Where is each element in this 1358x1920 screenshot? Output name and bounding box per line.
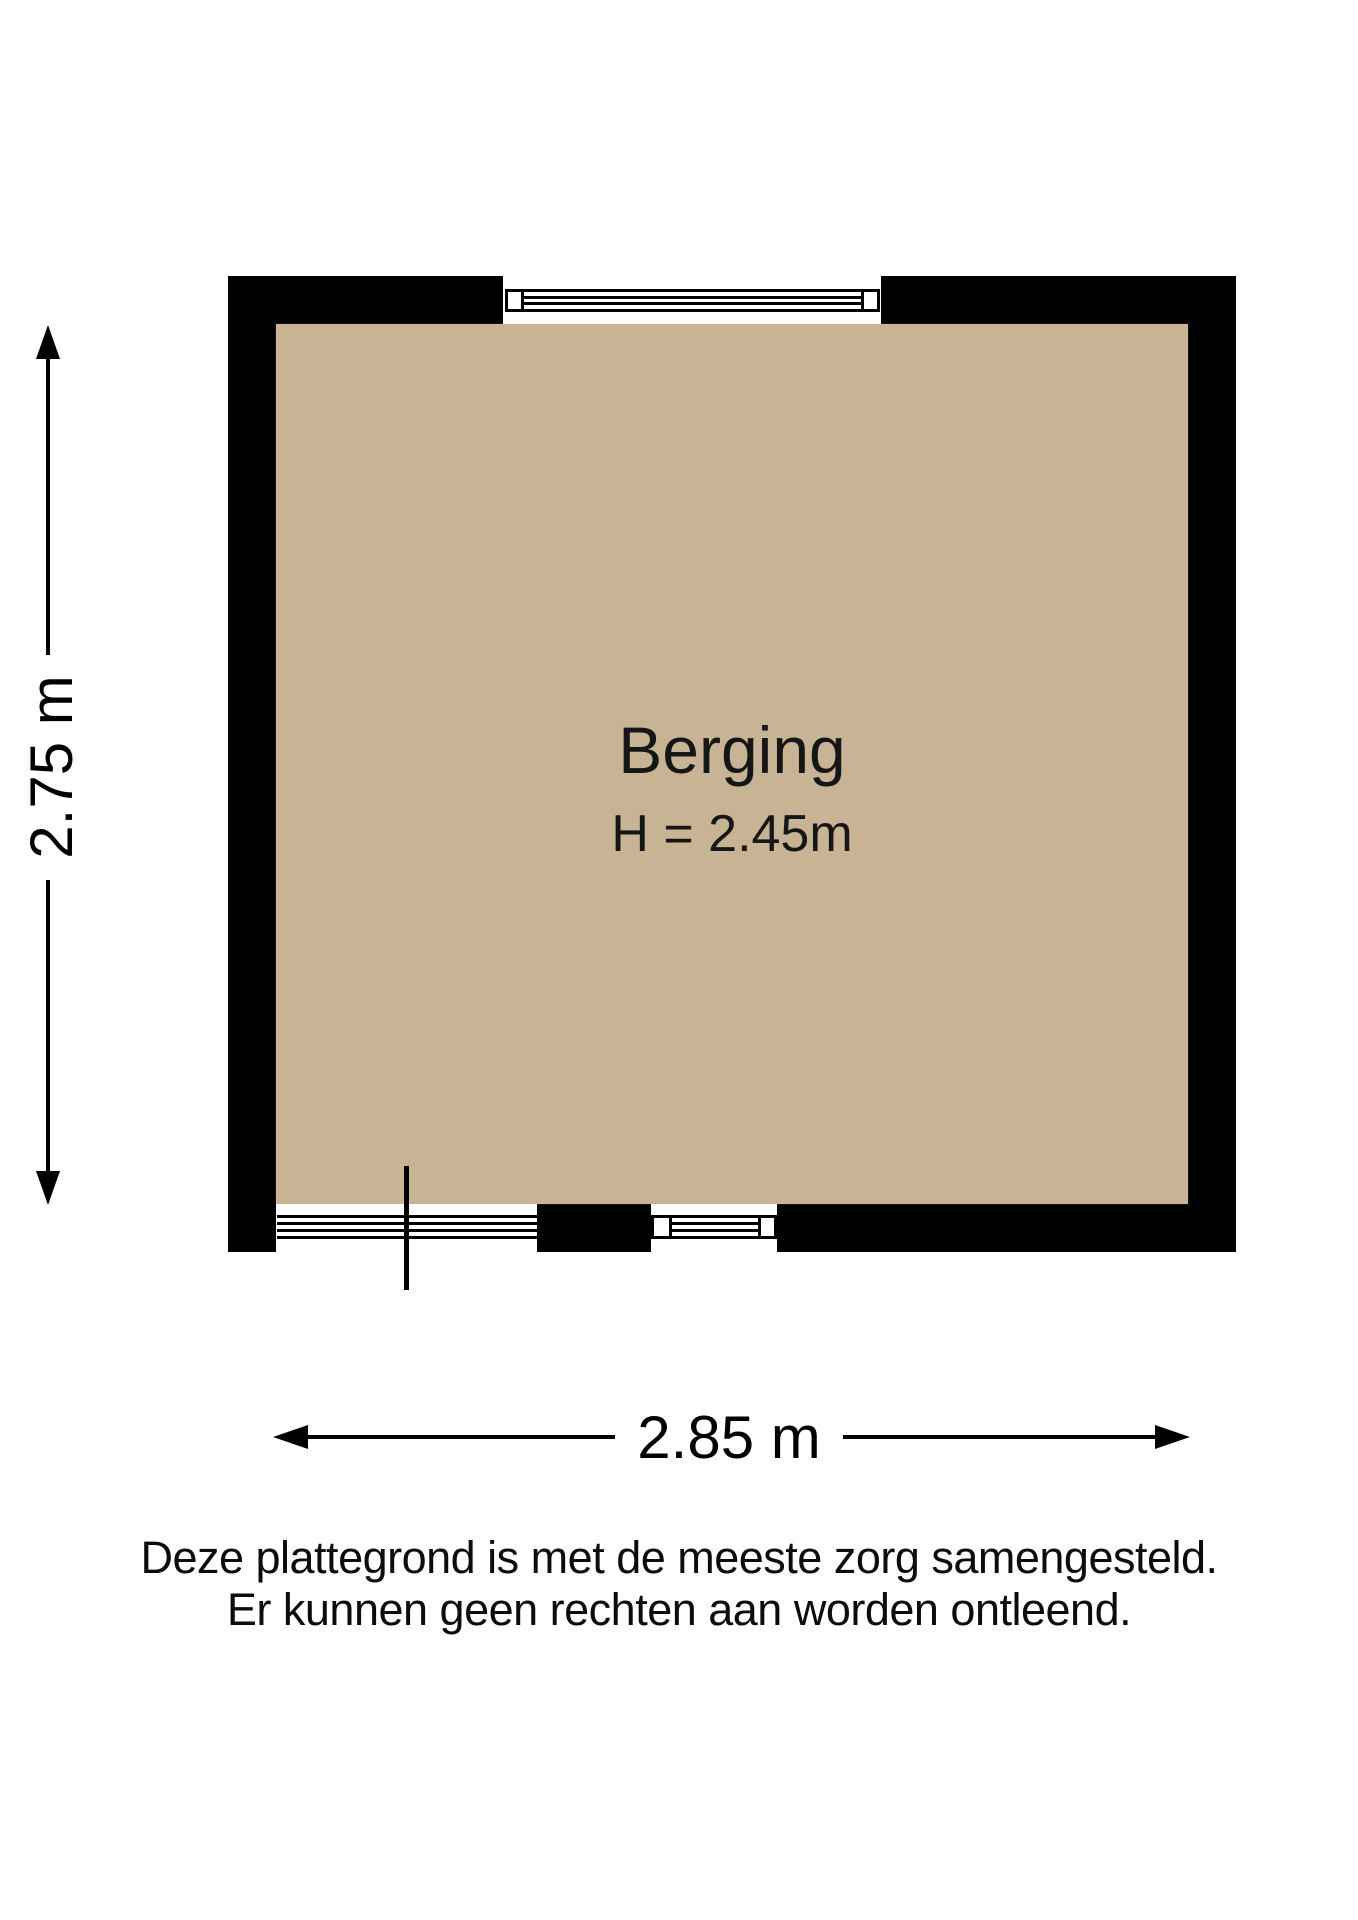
width-dimension-label: 2.85 m	[621, 1400, 836, 1476]
arrow-down-icon	[36, 1171, 60, 1205]
disclaimer: Deze plattegrond is met de meeste zorg s…	[0, 1532, 1358, 1636]
height-dimension-label: 2.75 m	[14, 659, 90, 874]
dimension-line-segment	[46, 358, 50, 655]
dimension-line-segment	[308, 1435, 615, 1439]
door-marker	[404, 1166, 409, 1290]
window-glazing	[522, 289, 862, 312]
floorplan-page: Berging H = 2.45m 2.75 m 2.85 m Deze pla…	[0, 0, 1358, 1920]
room-name-label: Berging	[618, 717, 846, 783]
dimension-line-segment	[46, 880, 50, 1172]
wall-right	[1188, 276, 1236, 1252]
glazing-line	[672, 1215, 758, 1218]
arrow-right-icon	[1155, 1425, 1190, 1449]
arrow-up-icon	[36, 325, 60, 359]
glazing-line	[672, 1222, 758, 1225]
window-frame-end	[861, 289, 880, 312]
glazing-line	[672, 1229, 758, 1232]
arrow-left-icon	[273, 1425, 308, 1449]
glazing-line	[522, 289, 862, 292]
dimension-line-segment	[843, 1435, 1155, 1439]
glazing-line	[522, 302, 862, 305]
window-frame-end	[758, 1215, 777, 1239]
glazing-line	[522, 296, 862, 299]
window-glazing	[672, 1215, 758, 1239]
disclaimer-line: Deze plattegrond is met de meeste zorg s…	[0, 1532, 1358, 1584]
disclaimer-line: Er kunnen geen rechten aan worden ontlee…	[0, 1584, 1358, 1636]
room-ceiling-height-label: H = 2.45m	[611, 808, 852, 860]
window-frame-end	[651, 1215, 672, 1239]
glazing-line	[522, 309, 862, 312]
wall-left	[228, 276, 276, 1252]
glazing-line	[672, 1236, 758, 1239]
